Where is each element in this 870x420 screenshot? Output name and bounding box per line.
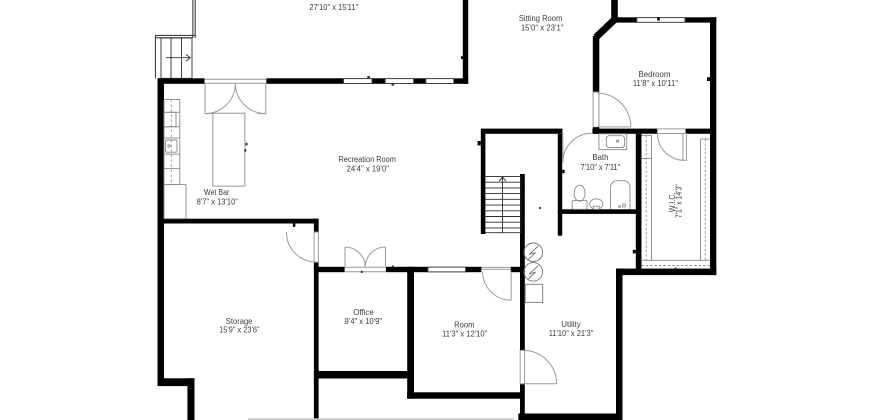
svg-text:27'10" x 15'11": 27'10" x 15'11" — [309, 2, 358, 12]
svg-text:Wet Bar: Wet Bar — [204, 187, 229, 197]
svg-text:15'9" x 23'6": 15'9" x 23'6" — [219, 325, 260, 335]
svg-text:8'7" x 13'10": 8'7" x 13'10" — [197, 196, 238, 206]
svg-text:11'10" x 21'3": 11'10" x 21'3" — [549, 328, 594, 338]
svg-text:15'0" x 23'1": 15'0" x 23'1" — [521, 22, 564, 32]
svg-text:7'10" x 7'11": 7'10" x 7'11" — [581, 162, 621, 172]
svg-text:11'8" x 10'11": 11'8" x 10'11" — [633, 78, 678, 88]
svg-text:Bath: Bath — [592, 152, 608, 162]
svg-text:9'4" x 10'9": 9'4" x 10'9" — [345, 316, 383, 326]
svg-text:24'4" x 19'0": 24'4" x 19'0" — [347, 163, 389, 173]
svg-text:7'1" x 14'3": 7'1" x 14'3" — [673, 184, 683, 218]
svg-text:11'3" x 12'10": 11'3" x 12'10" — [442, 329, 487, 339]
